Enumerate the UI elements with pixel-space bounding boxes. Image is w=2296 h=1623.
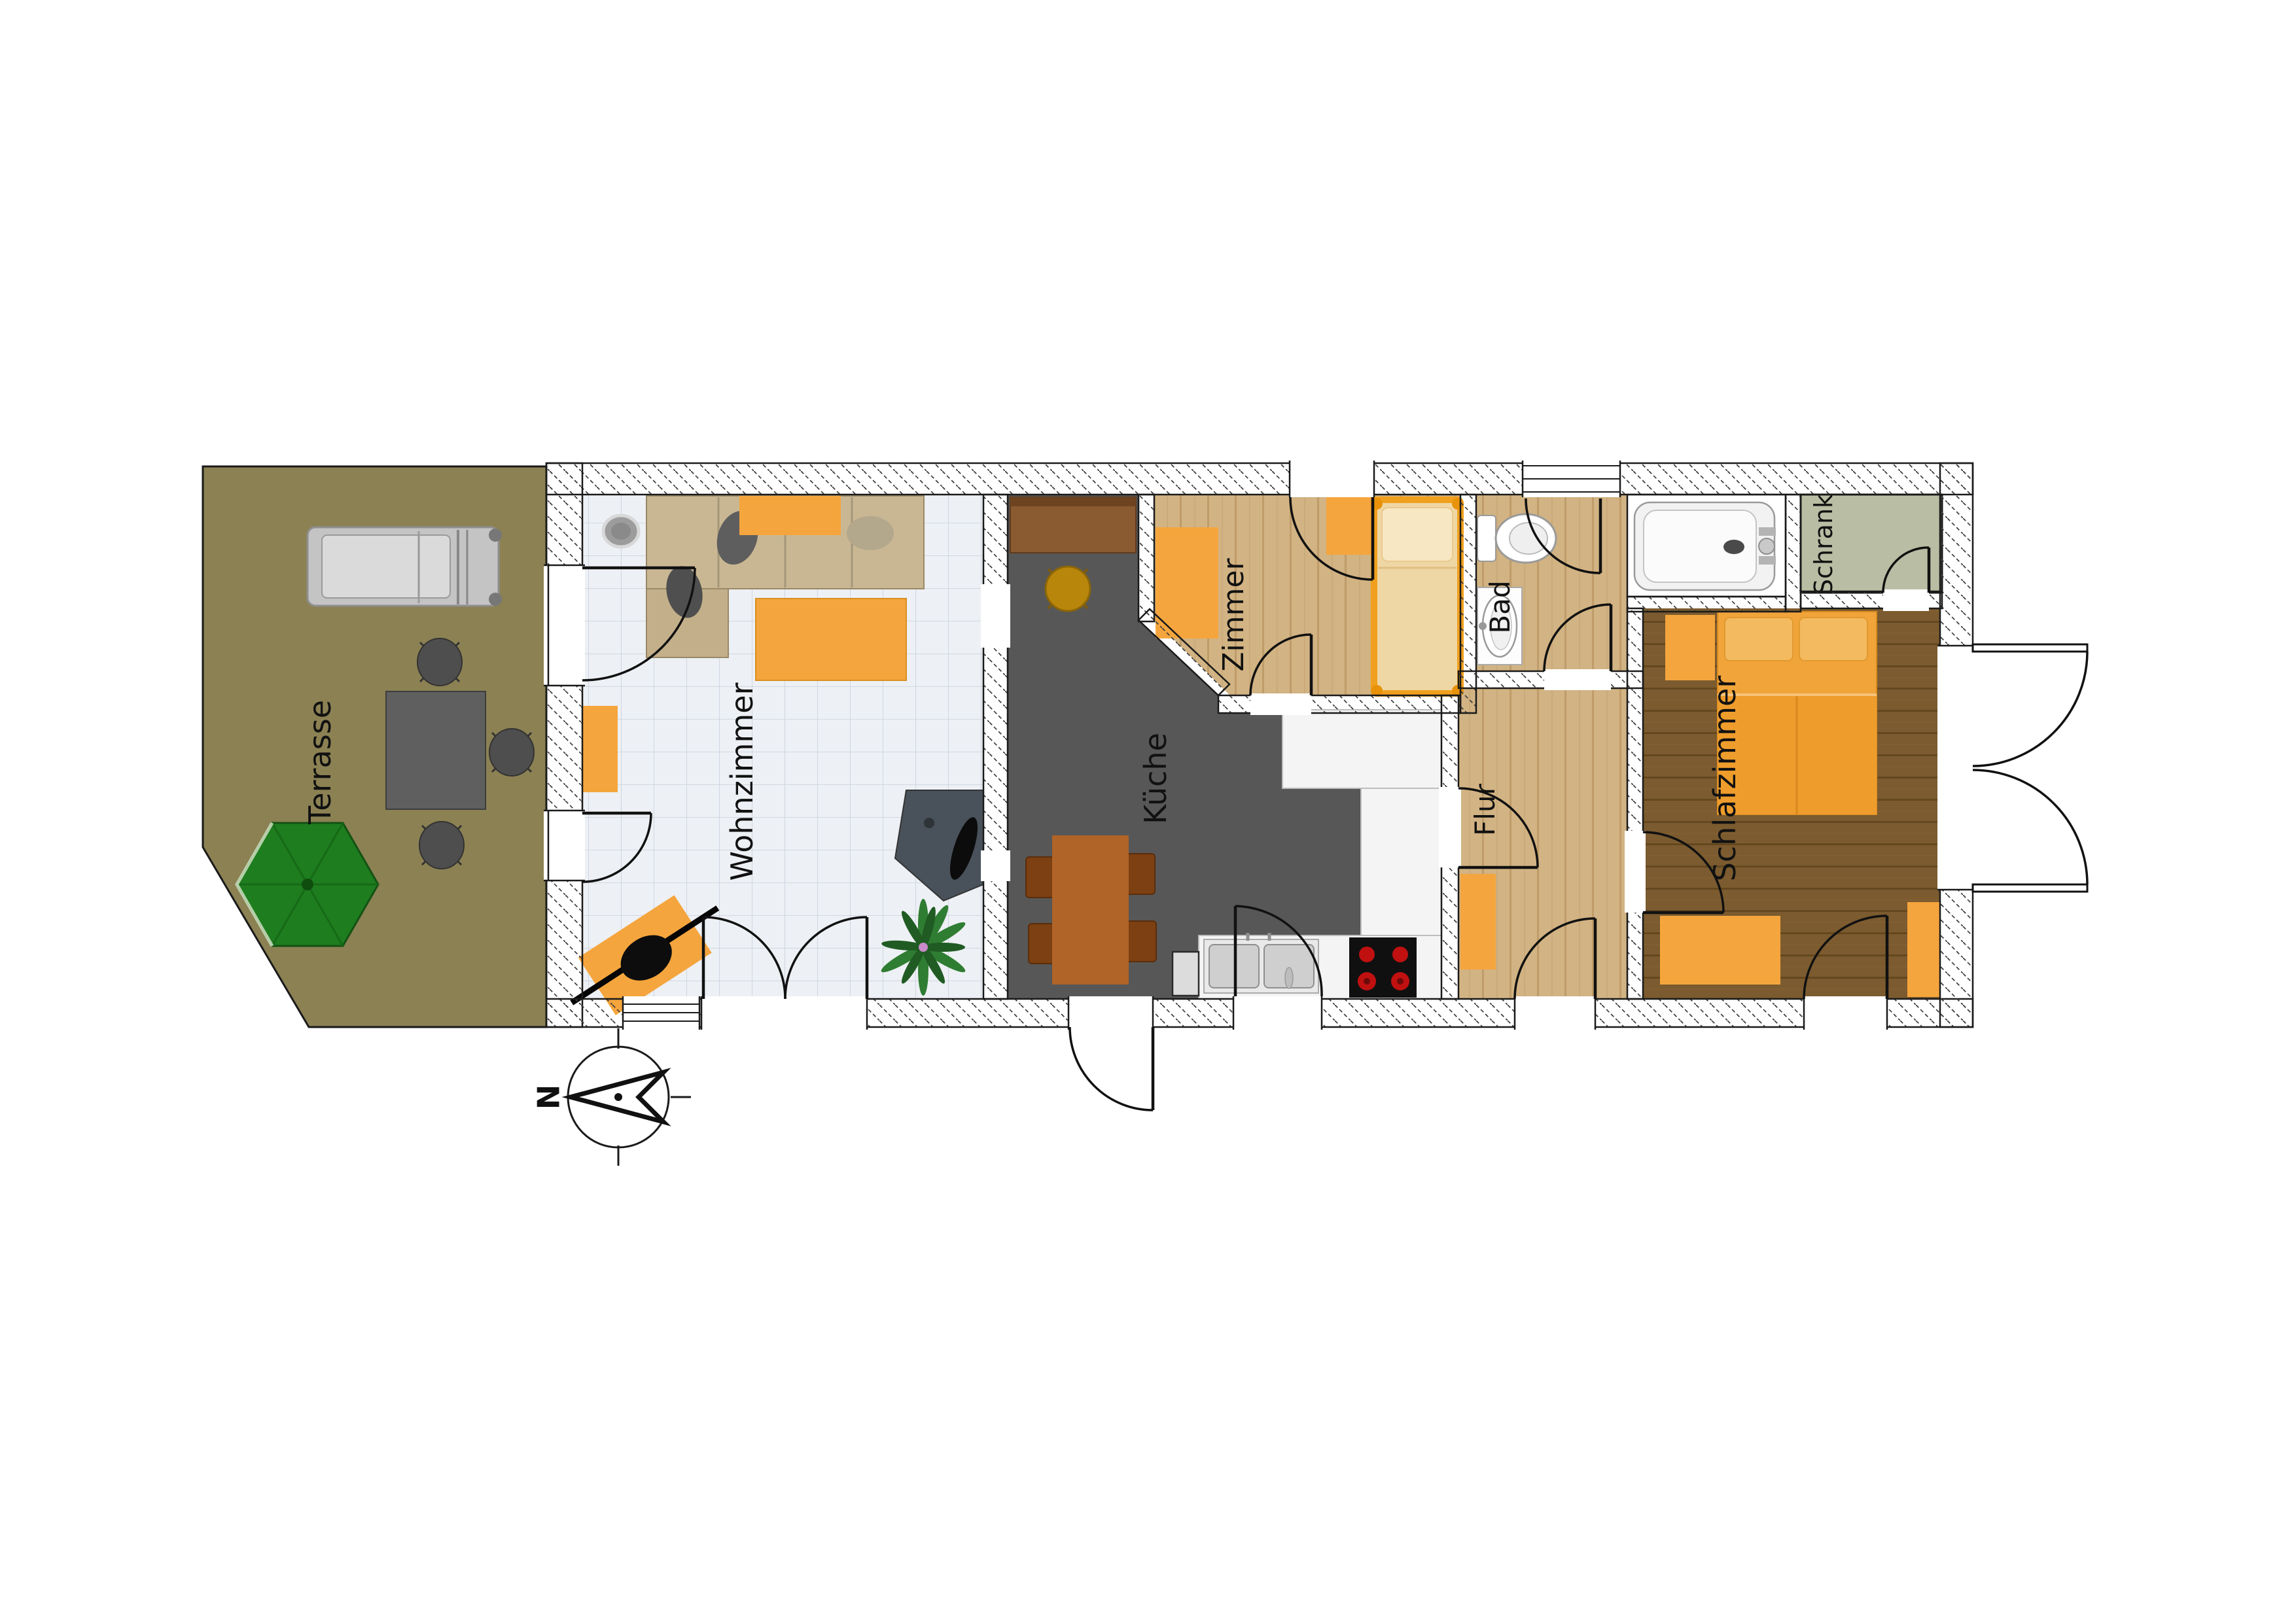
coffee-table xyxy=(756,599,906,680)
room-label-schrank: Schrank xyxy=(1809,494,1838,595)
terrace-area: Terrasse xyxy=(203,466,546,1027)
wall-kueche-zimmer xyxy=(1139,495,1154,621)
door-opening-kueche-south xyxy=(1069,996,1153,1030)
door-opening-french-east xyxy=(1937,646,1975,890)
floor-plan-drawing: Terrasse xyxy=(0,0,2296,1623)
room-label-flur: Flur xyxy=(1469,783,1501,835)
single-bed xyxy=(1371,498,1464,697)
bed-pillow-right xyxy=(1799,618,1867,661)
sofa-cushion-light xyxy=(847,516,894,550)
kitchen-counter-top xyxy=(1282,710,1441,788)
nightstand-right xyxy=(1907,902,1940,997)
wall-wohnzimmer-kueche xyxy=(983,495,1008,999)
schrank-room: Schrank xyxy=(1809,494,1838,595)
door-opening-terrace-2 xyxy=(544,811,585,881)
side-table xyxy=(603,515,639,547)
toilet xyxy=(1477,514,1556,563)
door-opening-entrance xyxy=(1515,996,1595,1030)
door-kueche-exterior xyxy=(1070,1027,1153,1110)
french-door-leaf-bottom xyxy=(1973,884,2087,892)
wall-niche-schrank xyxy=(1786,495,1801,612)
garden-chair-right xyxy=(489,729,534,776)
zimmer-desk xyxy=(1156,527,1218,638)
kitchen-sink xyxy=(1204,933,1318,993)
door-opening-zimmer-north xyxy=(1290,461,1374,497)
kitchen-cabinet xyxy=(1010,497,1136,553)
bed-pillow-left xyxy=(1725,618,1793,661)
sofa-throw xyxy=(739,496,841,535)
room-label-kueche: Küche xyxy=(1138,733,1173,824)
opening-wohnzimmer-kueche-2 xyxy=(981,850,1010,881)
floor-plan-page: Terrasse xyxy=(0,0,2296,1623)
kitchen-counter-right xyxy=(1361,788,1441,940)
zimmer-side-table xyxy=(1326,497,1372,555)
wall-north xyxy=(546,463,1973,495)
door-opening-flur-schlafzimmer xyxy=(1625,831,1646,913)
room-label-terrasse: Terrasse xyxy=(302,700,338,825)
compass-north-label: N xyxy=(531,1085,567,1110)
door-opening-kueche-zimmer xyxy=(1250,693,1311,715)
bathtub xyxy=(1634,502,1776,590)
wall-niche-south xyxy=(1627,597,1786,612)
door-opening-flur-bad xyxy=(1544,669,1611,690)
kitchen-cabinet-small xyxy=(1173,952,1199,996)
opening-wohnzimmer-kueche xyxy=(981,584,1010,648)
door-french-east xyxy=(1973,644,2087,892)
sun-lounger xyxy=(308,527,502,606)
garden-table xyxy=(386,691,486,809)
room-label-zimmer: Zimmer xyxy=(1217,557,1250,671)
garden-chair-top xyxy=(417,638,462,686)
door-opening-schlafzimmer-south xyxy=(1804,996,1887,1030)
stove xyxy=(1349,937,1417,998)
door-opening-kueche-flur xyxy=(1439,787,1461,867)
wall-flur-schlafzimmer xyxy=(1627,608,1643,999)
wall-west xyxy=(546,463,582,1027)
bathtub-faucet xyxy=(1759,527,1776,536)
garden-chair-bottom xyxy=(419,822,464,869)
compass-rose: N xyxy=(531,1028,692,1166)
nightstand xyxy=(1665,615,1715,680)
kitchen-stool xyxy=(1046,567,1090,611)
flur-wardrobe xyxy=(1460,874,1496,969)
sideboard xyxy=(582,706,618,792)
dining-table xyxy=(1052,835,1129,985)
door-opening-kueche-south-2 xyxy=(1233,996,1322,1030)
french-door-leaf-top xyxy=(1973,644,2087,652)
room-label-schlafzimmer: Schlafzimmer xyxy=(1707,676,1742,882)
room-label-wohnzimmer: Wohnzimmer xyxy=(724,682,760,881)
room-label-bad: Bad xyxy=(1484,580,1516,633)
door-opening-french-south xyxy=(701,996,867,1030)
dresser xyxy=(1660,916,1780,985)
door-opening-terrace-1 xyxy=(544,565,585,686)
door-opening-schrank xyxy=(1883,589,1929,611)
